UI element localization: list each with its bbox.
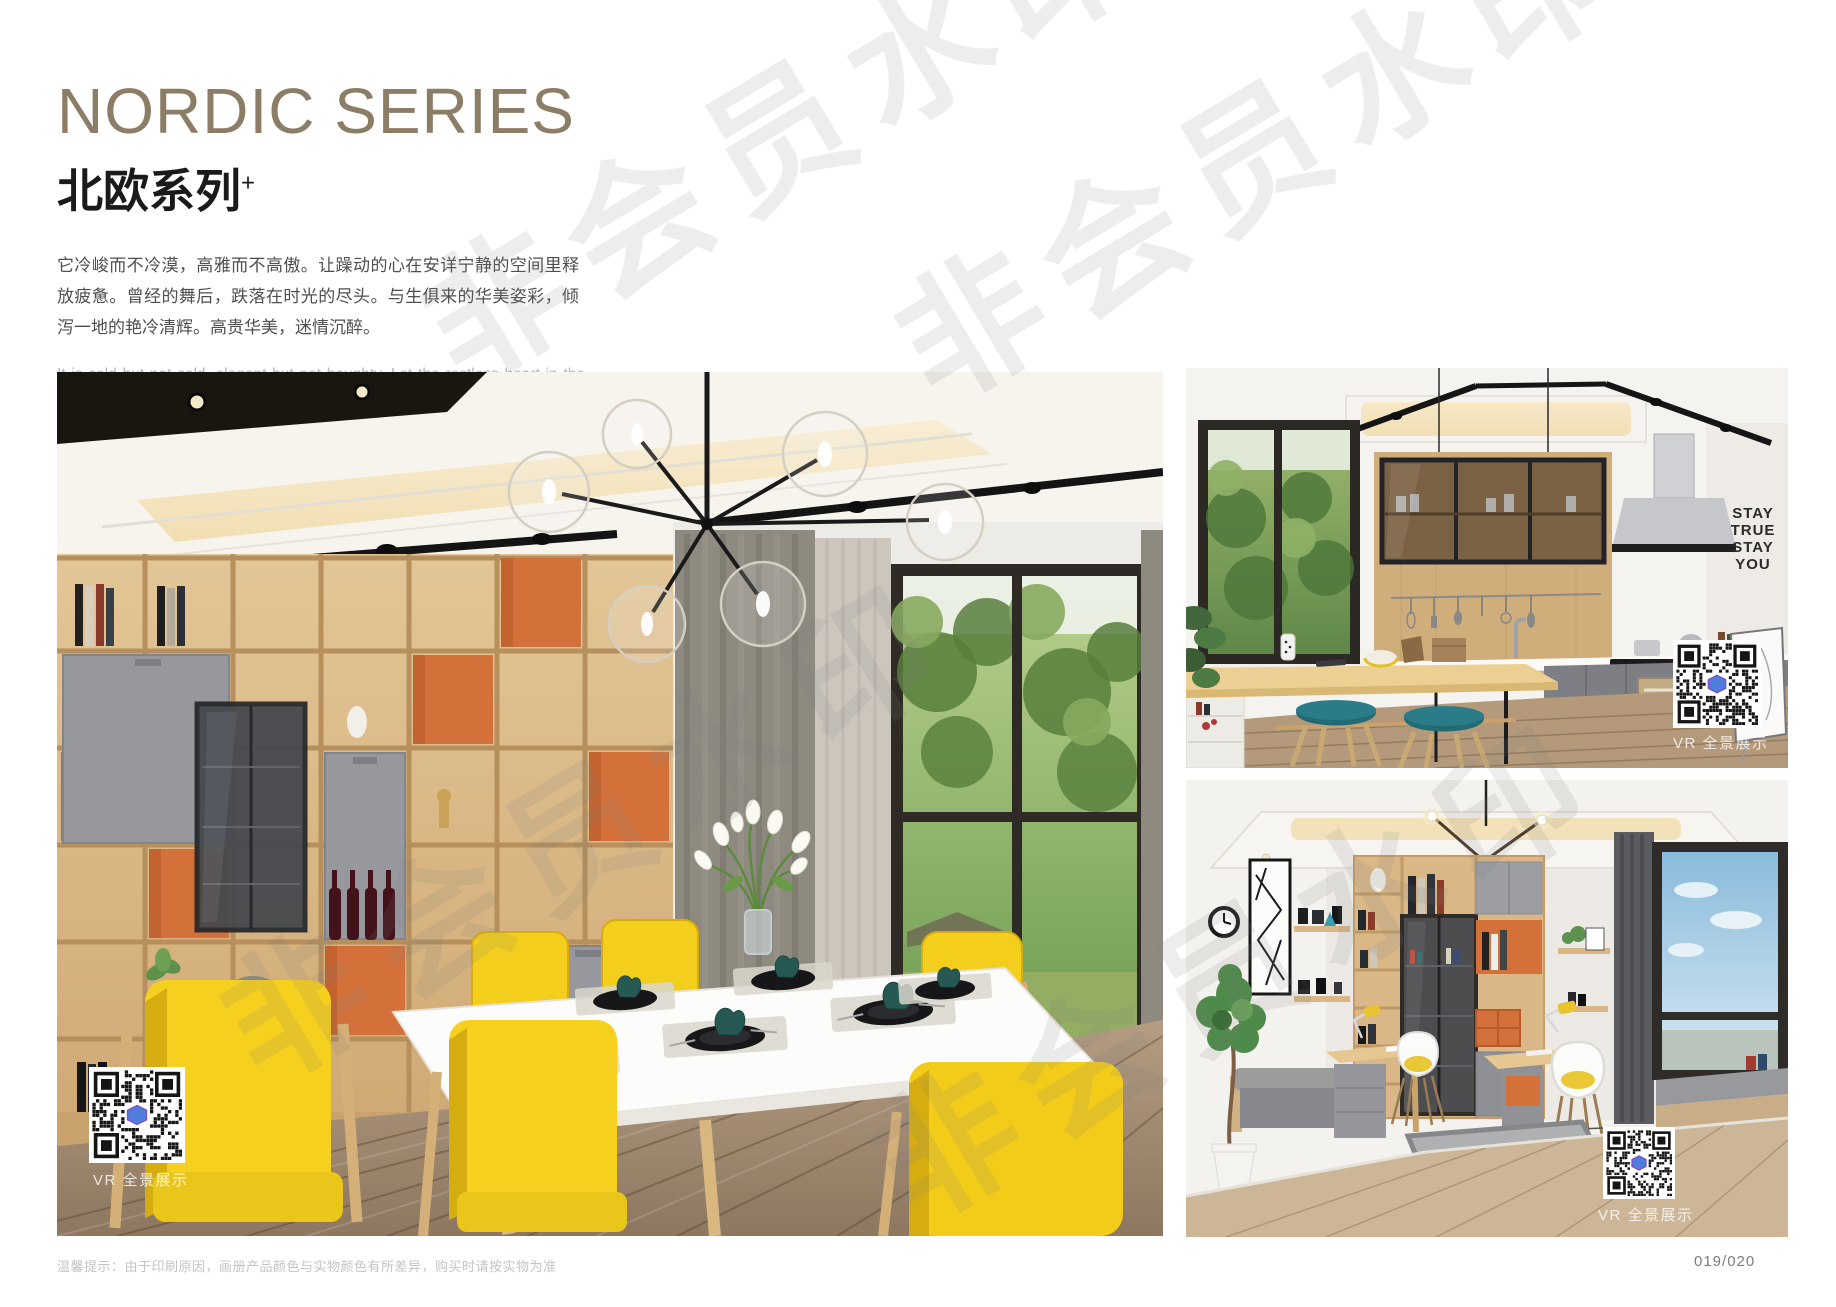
catalog-page: NORDIC SERIES 北欧系列+ 它冷峻而不冷漠，高雅而不高傲。让躁动的心… bbox=[0, 0, 1836, 1307]
svg-text:STAY: STAY bbox=[1732, 505, 1774, 522]
intro-paragraph-cn: 它冷峻而不冷漠，高雅而不高傲。让躁动的心在安详宁静的空间里释放疲惫。曾经的舞后，… bbox=[57, 251, 579, 344]
page-title: NORDIC SERIES bbox=[57, 78, 597, 145]
svg-text:YOU: YOU bbox=[1735, 556, 1771, 573]
dining-room-scene bbox=[57, 372, 1163, 1236]
abstract-art-frame bbox=[1250, 860, 1290, 994]
dining-room-photo: VR 全景展示 bbox=[57, 372, 1163, 1236]
window-bench bbox=[1230, 1068, 1338, 1132]
page-number: 019/020 bbox=[1694, 1253, 1755, 1270]
vr-label-dining: VR 全景展示 bbox=[93, 1169, 189, 1190]
study-window bbox=[1652, 842, 1788, 1080]
vr-qr-code-kitchen bbox=[1673, 640, 1761, 728]
study-room-photo: VR 全景展示 bbox=[1186, 780, 1788, 1237]
study-curtain bbox=[1614, 832, 1654, 1124]
page-subtitle: 北欧系列+ bbox=[57, 155, 597, 221]
footer-note: 温馨提示：由于印刷原因，画册产品颜色与实物颜色有所差异，购买时请按实物为准 bbox=[57, 1256, 557, 1275]
vr-label-kitchen: VR 全景展示 bbox=[1673, 732, 1769, 753]
wall-quote-text: STAY TRUE STAY YOU bbox=[1731, 505, 1776, 573]
study-room-scene bbox=[1186, 780, 1788, 1237]
vr-qr-code-study bbox=[1603, 1127, 1675, 1199]
vr-label-study: VR 全景展示 bbox=[1598, 1204, 1694, 1225]
svg-text:STAY: STAY bbox=[1732, 539, 1774, 556]
svg-text:TRUE: TRUE bbox=[1731, 522, 1776, 539]
glass-display-cabinet bbox=[197, 704, 305, 930]
vr-qr-code-dining bbox=[89, 1067, 185, 1163]
kitchen-photo: STAY TRUE STAY YOU VR 全景展示 bbox=[1186, 368, 1788, 768]
wall-clock bbox=[1210, 908, 1238, 936]
subtitle-superscript: + bbox=[241, 170, 255, 197]
